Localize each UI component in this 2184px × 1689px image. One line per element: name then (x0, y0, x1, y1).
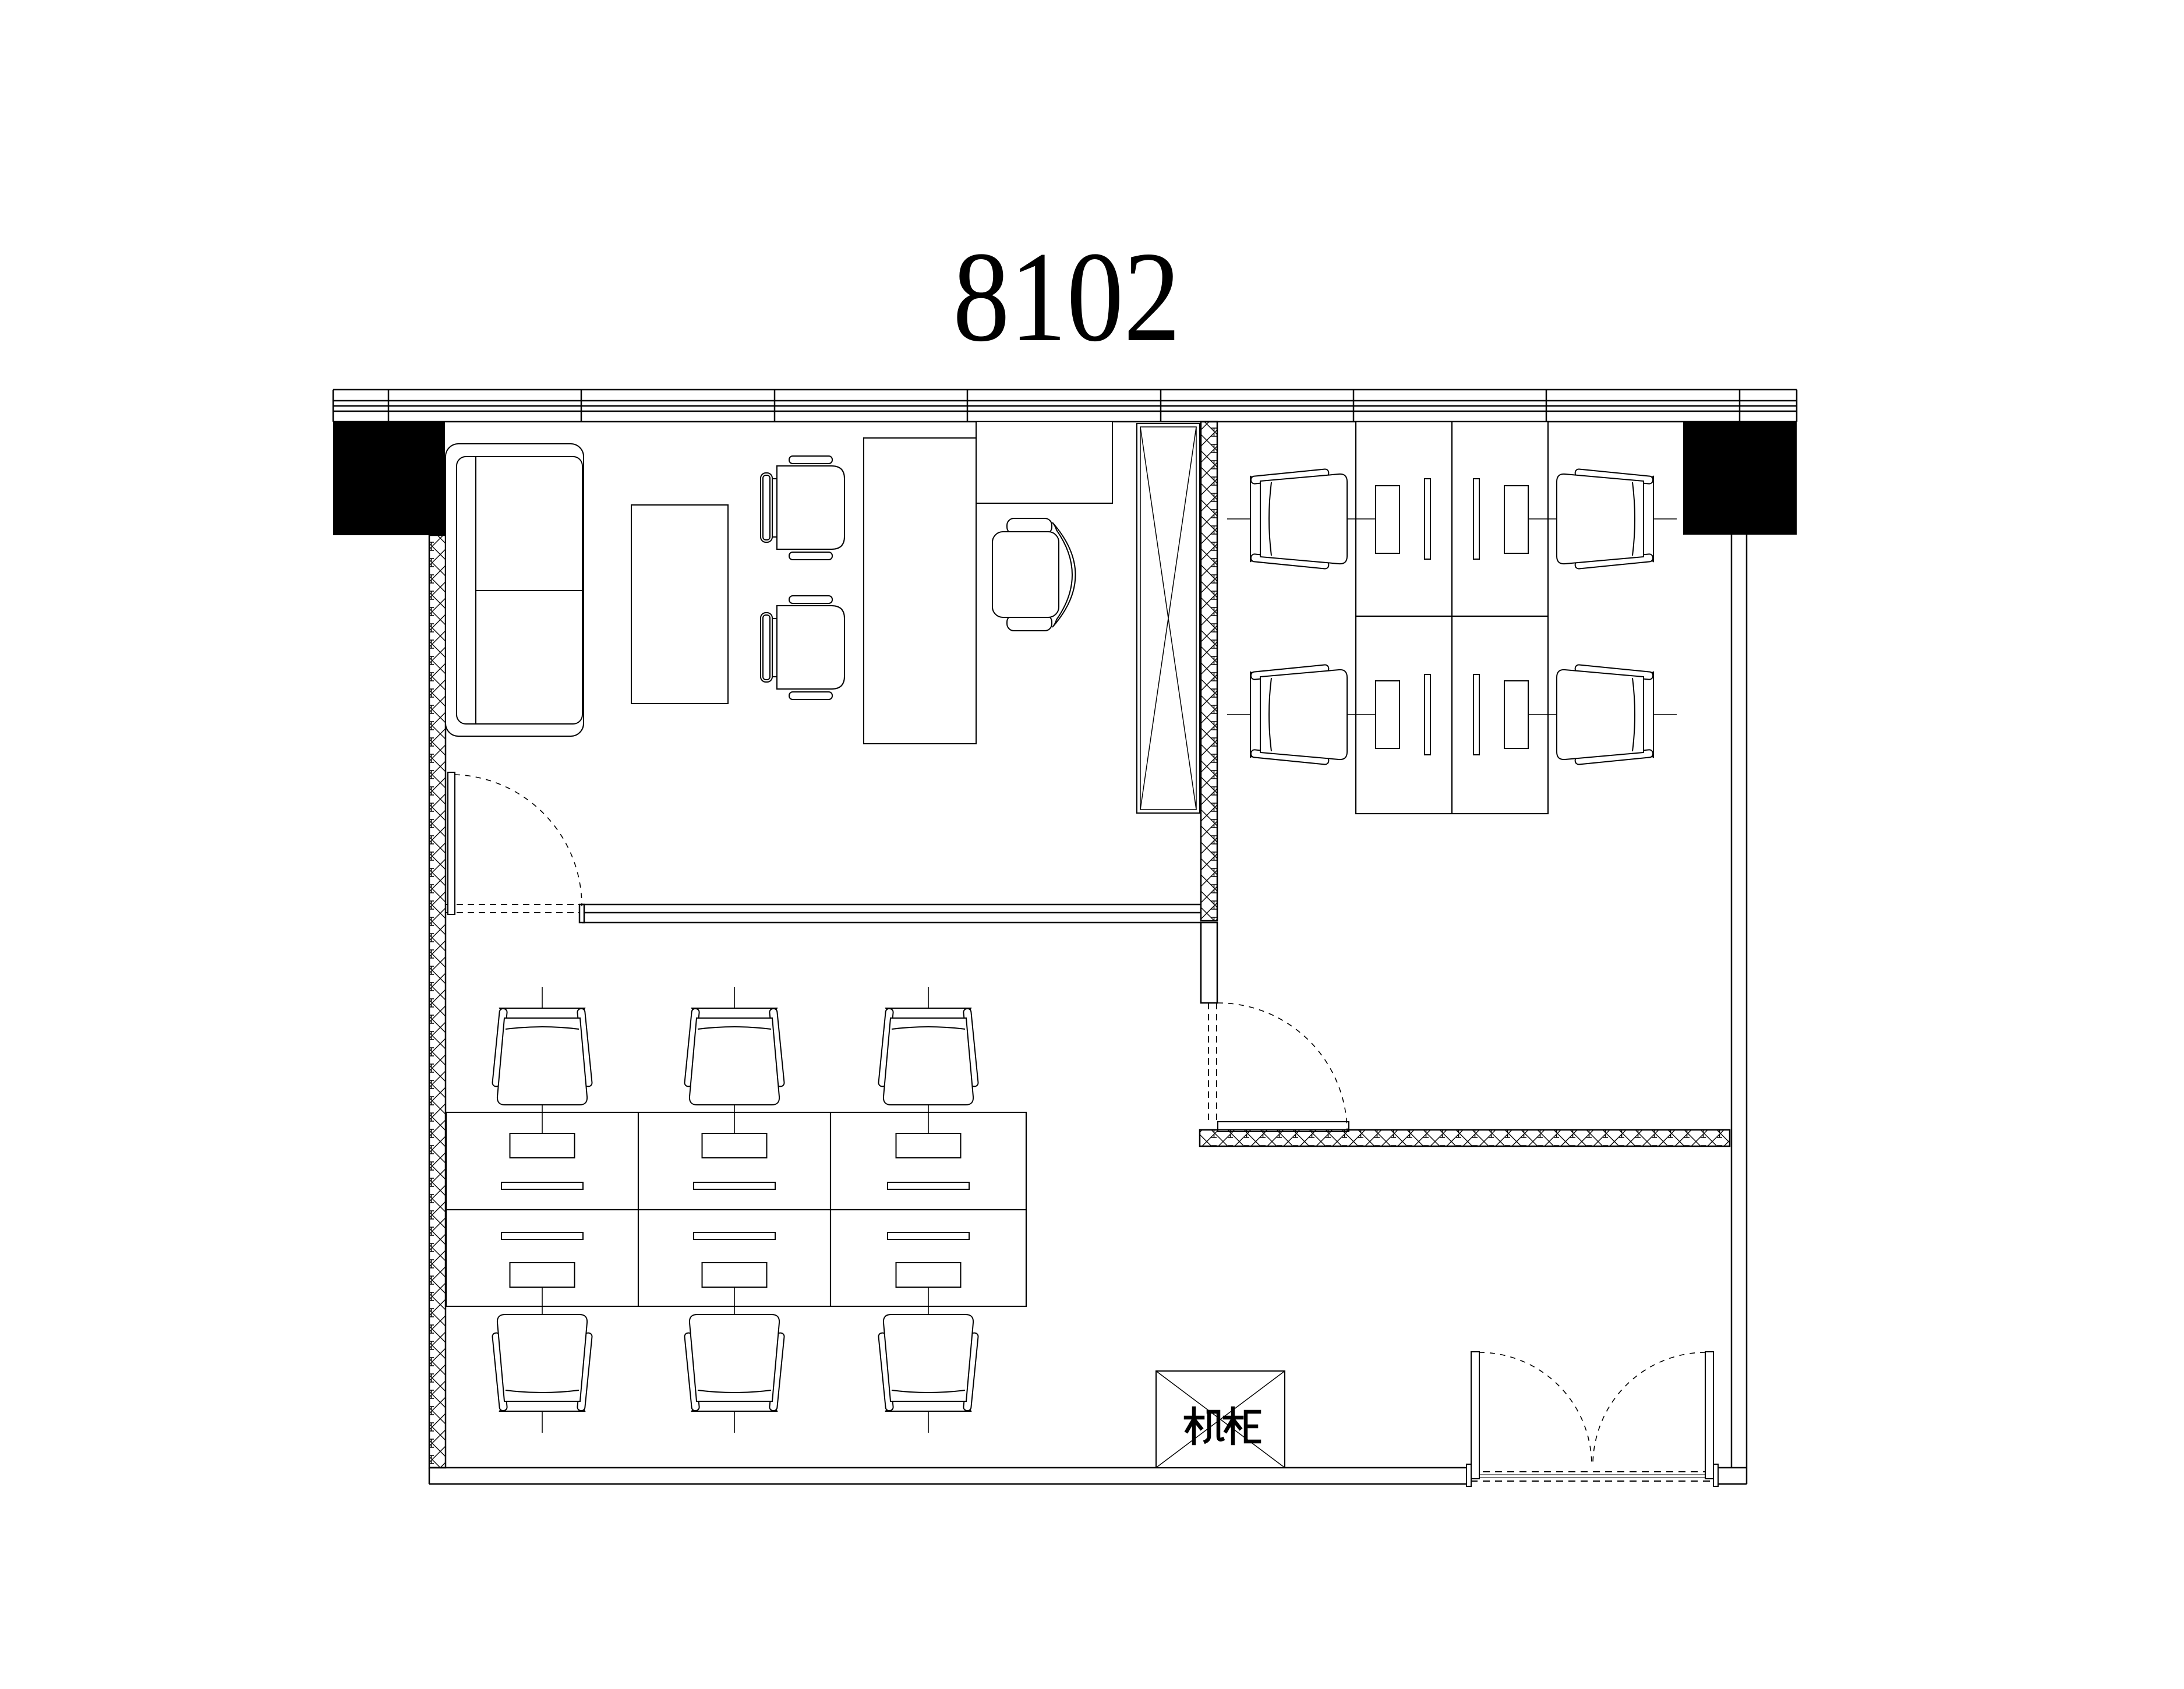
svg-text:8102: 8102 (953, 225, 1181, 369)
